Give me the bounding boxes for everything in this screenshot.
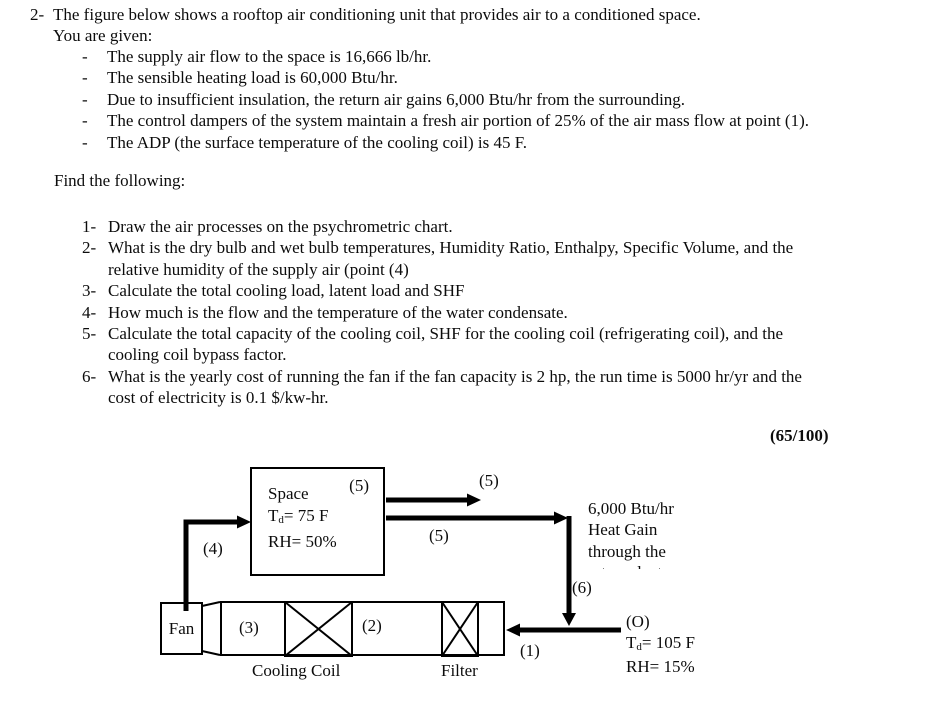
fan-box: Fan [160, 602, 203, 655]
point-label-5-top: (5) [479, 470, 499, 491]
return-air-arrow-5 [386, 512, 568, 525]
space-box: (5) Space Td= 75 F RH= 50% [250, 467, 385, 576]
point-label-3: (3) [239, 617, 259, 638]
point-label-6: (6) [572, 577, 592, 598]
filter-caption: Filter [441, 660, 478, 681]
document-page: 2- The figure below shows a rooftop air … [0, 0, 936, 725]
space-conditions: Space Td= 75 F RH= 50% [268, 483, 337, 553]
point-label-O: (O) [626, 612, 695, 633]
supply-air-arrow-4 [186, 516, 251, 612]
outdoor-temperature: Td= 105 F [626, 633, 695, 658]
fan-label: Fan [169, 619, 195, 639]
heat-gain-note: 6,000 Btu/hr Heat Gain through the retur… [588, 498, 674, 569]
space-outlet-arrow-5-top [386, 494, 481, 507]
fan-outlet-trapezoid [202, 602, 220, 655]
outdoor-air-conditions: (O) Td= 105 F RH= 15% [626, 612, 695, 678]
return-duct-down-arrow-6 [562, 516, 576, 626]
heat-gain-line: Heat Gain [588, 519, 674, 540]
heat-gain-line: through the [588, 541, 674, 562]
point-label-5-mid: (5) [429, 525, 449, 546]
space-humidity: RH= 50% [268, 531, 337, 553]
space-temperature: Td= 75 F [268, 505, 337, 531]
heat-gain-line-clipped: return duct [588, 562, 674, 569]
point-label-4: (4) [203, 538, 223, 559]
outdoor-humidity: RH= 15% [626, 657, 695, 678]
heat-gain-line: 6,000 Btu/hr [588, 498, 674, 519]
cooling-coil-caption: Cooling Coil [252, 660, 340, 681]
point-label-2: (2) [362, 615, 382, 636]
point-label-5-space: (5) [349, 476, 369, 496]
point-label-1: (1) [520, 640, 540, 661]
space-title: Space [268, 483, 337, 505]
mixed-air-arrow-1 [506, 624, 621, 637]
